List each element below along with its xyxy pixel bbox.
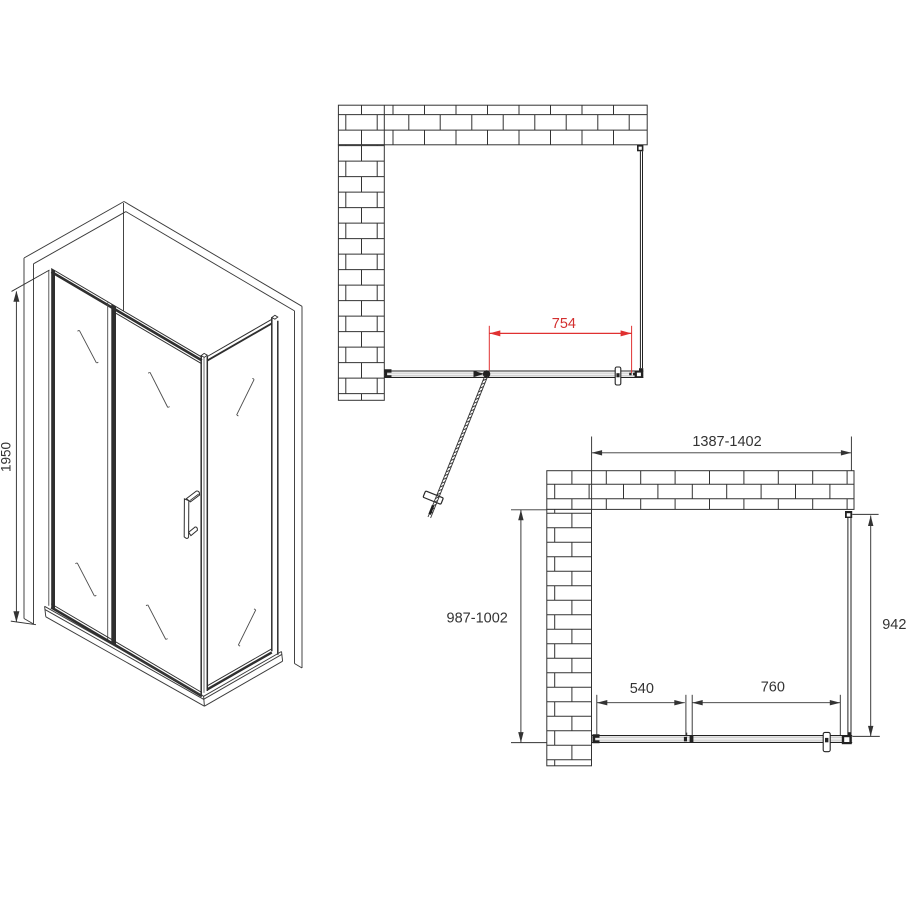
svg-text:1387-1402: 1387-1402 <box>692 434 761 450</box>
svg-text:754: 754 <box>552 316 576 332</box>
svg-text:1950: 1950 <box>0 442 14 472</box>
svg-text:942: 942 <box>882 617 906 633</box>
svg-text:540: 540 <box>630 681 654 697</box>
svg-text:760: 760 <box>761 680 785 696</box>
svg-text:987-1002: 987-1002 <box>447 611 508 627</box>
